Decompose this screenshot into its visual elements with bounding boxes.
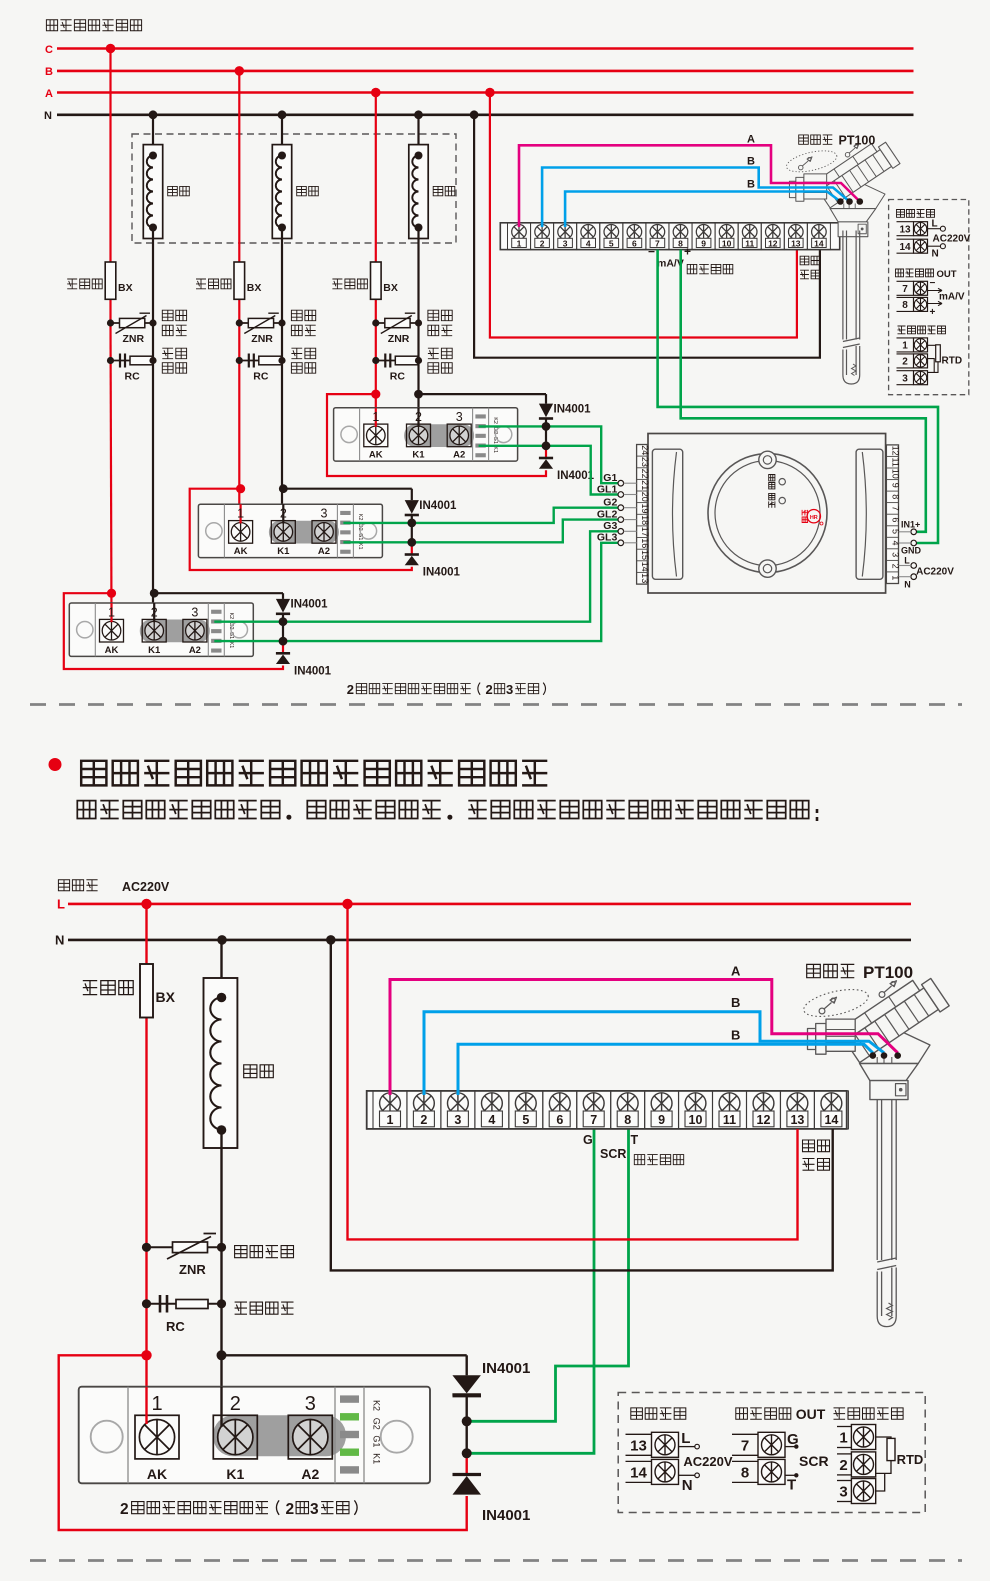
svg-text:IN4001: IN4001 (294, 666, 332, 678)
svg-text:BX: BX (383, 282, 398, 294)
svg-text:AK: AK (369, 450, 383, 461)
svg-text:14: 14 (814, 238, 824, 248)
svg-text:2: 2 (486, 682, 493, 697)
svg-text:AC220V: AC220V (122, 880, 170, 894)
svg-text:3: 3 (506, 682, 513, 697)
svg-text:16: 16 (640, 538, 650, 548)
svg-text:K1: K1 (492, 446, 498, 453)
svg-text:IN4001: IN4001 (482, 1360, 530, 1377)
svg-text:B: B (731, 995, 740, 1010)
svg-text:IN4001: IN4001 (482, 1507, 530, 1524)
svg-text:3: 3 (454, 1113, 461, 1127)
svg-text:19: 19 (640, 503, 650, 513)
svg-text:K2: K2 (228, 613, 234, 620)
svg-text:A2: A2 (301, 1466, 319, 1482)
svg-text:13: 13 (630, 1437, 647, 1454)
svg-text:22: 22 (640, 469, 650, 479)
svg-text:B: B (747, 179, 755, 191)
svg-text:2: 2 (415, 410, 422, 424)
svg-text:ZNR: ZNR (388, 333, 410, 345)
svg-text:GND: GND (901, 546, 922, 556)
svg-text:IN4001: IN4001 (291, 599, 329, 611)
svg-text:RC: RC (166, 1319, 185, 1334)
svg-text:5: 5 (609, 238, 614, 248)
svg-text:13: 13 (790, 1113, 804, 1127)
svg-text:+: + (930, 307, 936, 318)
svg-text:RTD: RTD (942, 356, 963, 367)
svg-text:2: 2 (151, 606, 158, 620)
svg-text:12: 12 (768, 238, 778, 248)
svg-text:G3: G3 (603, 520, 617, 532)
svg-text:3: 3 (890, 552, 900, 557)
svg-text:2: 2 (230, 1393, 241, 1415)
svg-text:1: 1 (839, 1430, 847, 1447)
svg-text:GL3: GL3 (597, 532, 618, 544)
svg-text:11: 11 (890, 458, 900, 467)
svg-text:A: A (731, 964, 741, 979)
svg-text:2: 2 (120, 1501, 129, 1518)
svg-text:3: 3 (563, 238, 568, 248)
svg-text:2: 2 (347, 682, 354, 697)
svg-text:8: 8 (741, 1464, 749, 1481)
svg-text:IN4001: IN4001 (554, 403, 592, 415)
svg-text:20: 20 (640, 492, 650, 502)
svg-text:ZNR: ZNR (123, 333, 145, 345)
svg-text:21: 21 (640, 480, 650, 490)
svg-text:2: 2 (540, 238, 545, 248)
svg-text:9: 9 (890, 483, 900, 488)
svg-text:K1: K1 (226, 1466, 244, 1482)
svg-text:PT100: PT100 (863, 963, 913, 982)
svg-text:A: A (747, 133, 755, 145)
svg-text:N: N (55, 933, 64, 948)
svg-text:BX: BX (118, 282, 133, 294)
svg-text:K2: K2 (372, 1400, 382, 1411)
svg-text:G: G (583, 1133, 593, 1147)
svg-text:13: 13 (640, 573, 650, 583)
svg-text:3: 3 (839, 1484, 847, 1501)
svg-text:10: 10 (722, 238, 732, 248)
svg-text:IN4001: IN4001 (423, 567, 461, 579)
svg-text:1: 1 (151, 1393, 162, 1415)
svg-text:6: 6 (556, 1113, 563, 1127)
svg-text:N: N (44, 110, 52, 122)
svg-text:A2: A2 (453, 450, 465, 461)
svg-text:L: L (932, 219, 938, 230)
svg-text:2: 2 (280, 507, 287, 521)
svg-text:G1: G1 (603, 472, 617, 484)
svg-text:2: 2 (420, 1113, 427, 1127)
svg-text:13: 13 (899, 224, 911, 235)
svg-text:12: 12 (890, 446, 900, 456)
svg-text:G: G (787, 1431, 799, 1448)
svg-text:2: 2 (890, 564, 900, 569)
svg-text:6: 6 (890, 517, 900, 522)
svg-text:G2: G2 (603, 497, 617, 509)
svg-text:AK: AK (147, 1466, 167, 1482)
svg-text:PT100: PT100 (839, 134, 876, 148)
svg-text:K2: K2 (492, 417, 498, 424)
svg-text:10: 10 (689, 1113, 703, 1127)
svg-text:IN4001: IN4001 (557, 470, 595, 482)
svg-text:10: 10 (890, 469, 900, 479)
svg-text:4: 4 (488, 1113, 495, 1127)
svg-text:8: 8 (624, 1113, 631, 1127)
svg-text:3: 3 (321, 507, 328, 521)
svg-text:mA/V: mA/V (939, 292, 965, 303)
svg-text:1: 1 (890, 575, 900, 580)
svg-text:8: 8 (890, 494, 900, 499)
svg-text:4: 4 (586, 238, 591, 248)
svg-text:7: 7 (590, 1113, 597, 1127)
svg-text:L: L (681, 1430, 690, 1447)
svg-text:3: 3 (456, 410, 463, 424)
svg-text:RC: RC (125, 371, 141, 383)
svg-text:K1: K1 (277, 546, 290, 557)
svg-text:B: B (45, 66, 53, 78)
svg-text:7: 7 (890, 506, 900, 511)
svg-text:AK: AK (105, 645, 119, 656)
svg-text:IN4001: IN4001 (419, 500, 457, 512)
svg-text:N: N (682, 1477, 693, 1494)
svg-text:14: 14 (640, 562, 650, 572)
svg-text:ZNR: ZNR (179, 1262, 206, 1277)
svg-text:K1: K1 (412, 450, 425, 461)
svg-text:B: B (731, 1028, 740, 1043)
svg-text:K1: K1 (228, 642, 234, 649)
svg-text:AK: AK (234, 546, 248, 557)
svg-text:11: 11 (745, 238, 754, 248)
svg-text:14: 14 (899, 242, 911, 253)
svg-text:GL2: GL2 (597, 509, 618, 521)
svg-text:−: − (930, 278, 936, 289)
svg-text:−: − (648, 245, 655, 259)
svg-text:AC220V: AC220V (683, 1454, 732, 1469)
svg-text:BX: BX (156, 989, 176, 1005)
svg-text:3: 3 (902, 373, 908, 384)
svg-text:1: 1 (387, 1113, 394, 1127)
svg-text:AC220V: AC220V (916, 566, 954, 577)
svg-text:8: 8 (678, 238, 683, 248)
svg-text:1: 1 (902, 341, 908, 352)
svg-text:N: N (904, 580, 911, 590)
svg-text:RTD: RTD (897, 1452, 924, 1467)
svg-text:A: A (45, 88, 53, 100)
svg-text:5: 5 (522, 1113, 529, 1127)
svg-text:7: 7 (741, 1437, 749, 1454)
svg-text:GL1: GL1 (597, 483, 618, 495)
svg-text:BX: BX (247, 282, 262, 294)
svg-text:K1: K1 (148, 645, 161, 656)
svg-text:3: 3 (305, 1393, 316, 1415)
svg-text:3: 3 (310, 1501, 319, 1518)
svg-text:11: 11 (723, 1113, 736, 1127)
svg-text:A2: A2 (318, 546, 330, 557)
svg-text:IN1+: IN1+ (901, 519, 920, 529)
svg-text:2: 2 (902, 357, 908, 368)
svg-text:K2: K2 (357, 514, 363, 521)
svg-text:2: 2 (839, 1457, 847, 1474)
svg-text:1: 1 (372, 410, 379, 424)
svg-text:G2: G2 (372, 1418, 382, 1430)
svg-text:HR: HR (810, 515, 818, 521)
svg-text:1: 1 (517, 238, 522, 248)
svg-text:C: C (45, 44, 53, 56)
svg-text:A2: A2 (189, 645, 201, 656)
svg-text:1: 1 (108, 606, 115, 620)
svg-text:7: 7 (902, 284, 908, 295)
svg-text:OUT: OUT (937, 269, 957, 280)
svg-text:T: T (631, 1133, 639, 1147)
svg-text:AC220V: AC220V (933, 234, 971, 245)
svg-text:23: 23 (640, 457, 650, 467)
svg-text:ZNR: ZNR (251, 333, 273, 345)
svg-text:1: 1 (237, 507, 244, 521)
svg-text:K1: K1 (357, 543, 363, 550)
svg-text:14: 14 (824, 1113, 838, 1127)
svg-text:9: 9 (658, 1113, 665, 1127)
svg-text:RC: RC (390, 371, 406, 383)
svg-text:SCR: SCR (799, 1453, 829, 1469)
svg-text:K1: K1 (372, 1453, 382, 1464)
svg-text:T: T (787, 1477, 796, 1494)
svg-text:17: 17 (640, 527, 650, 537)
svg-text:SCR: SCR (600, 1147, 626, 1161)
svg-text:15: 15 (640, 550, 650, 560)
svg-text:RC: RC (253, 371, 269, 383)
svg-text:18: 18 (640, 515, 650, 525)
svg-text:2: 2 (286, 1501, 295, 1518)
svg-text:+: + (684, 245, 691, 259)
svg-text:8: 8 (902, 300, 908, 311)
svg-text:OUT: OUT (796, 1406, 826, 1422)
svg-text:6: 6 (632, 238, 637, 248)
svg-text:24: 24 (640, 445, 650, 455)
svg-text:N: N (932, 249, 939, 260)
svg-text:14: 14 (630, 1464, 647, 1481)
svg-text:7: 7 (655, 238, 660, 248)
svg-text:3: 3 (191, 606, 198, 620)
svg-text:9: 9 (701, 238, 706, 248)
svg-text:L: L (904, 556, 910, 566)
svg-text:B: B (747, 156, 755, 168)
svg-text:12: 12 (757, 1113, 771, 1127)
svg-text:L: L (57, 897, 65, 912)
svg-text:13: 13 (791, 238, 801, 248)
